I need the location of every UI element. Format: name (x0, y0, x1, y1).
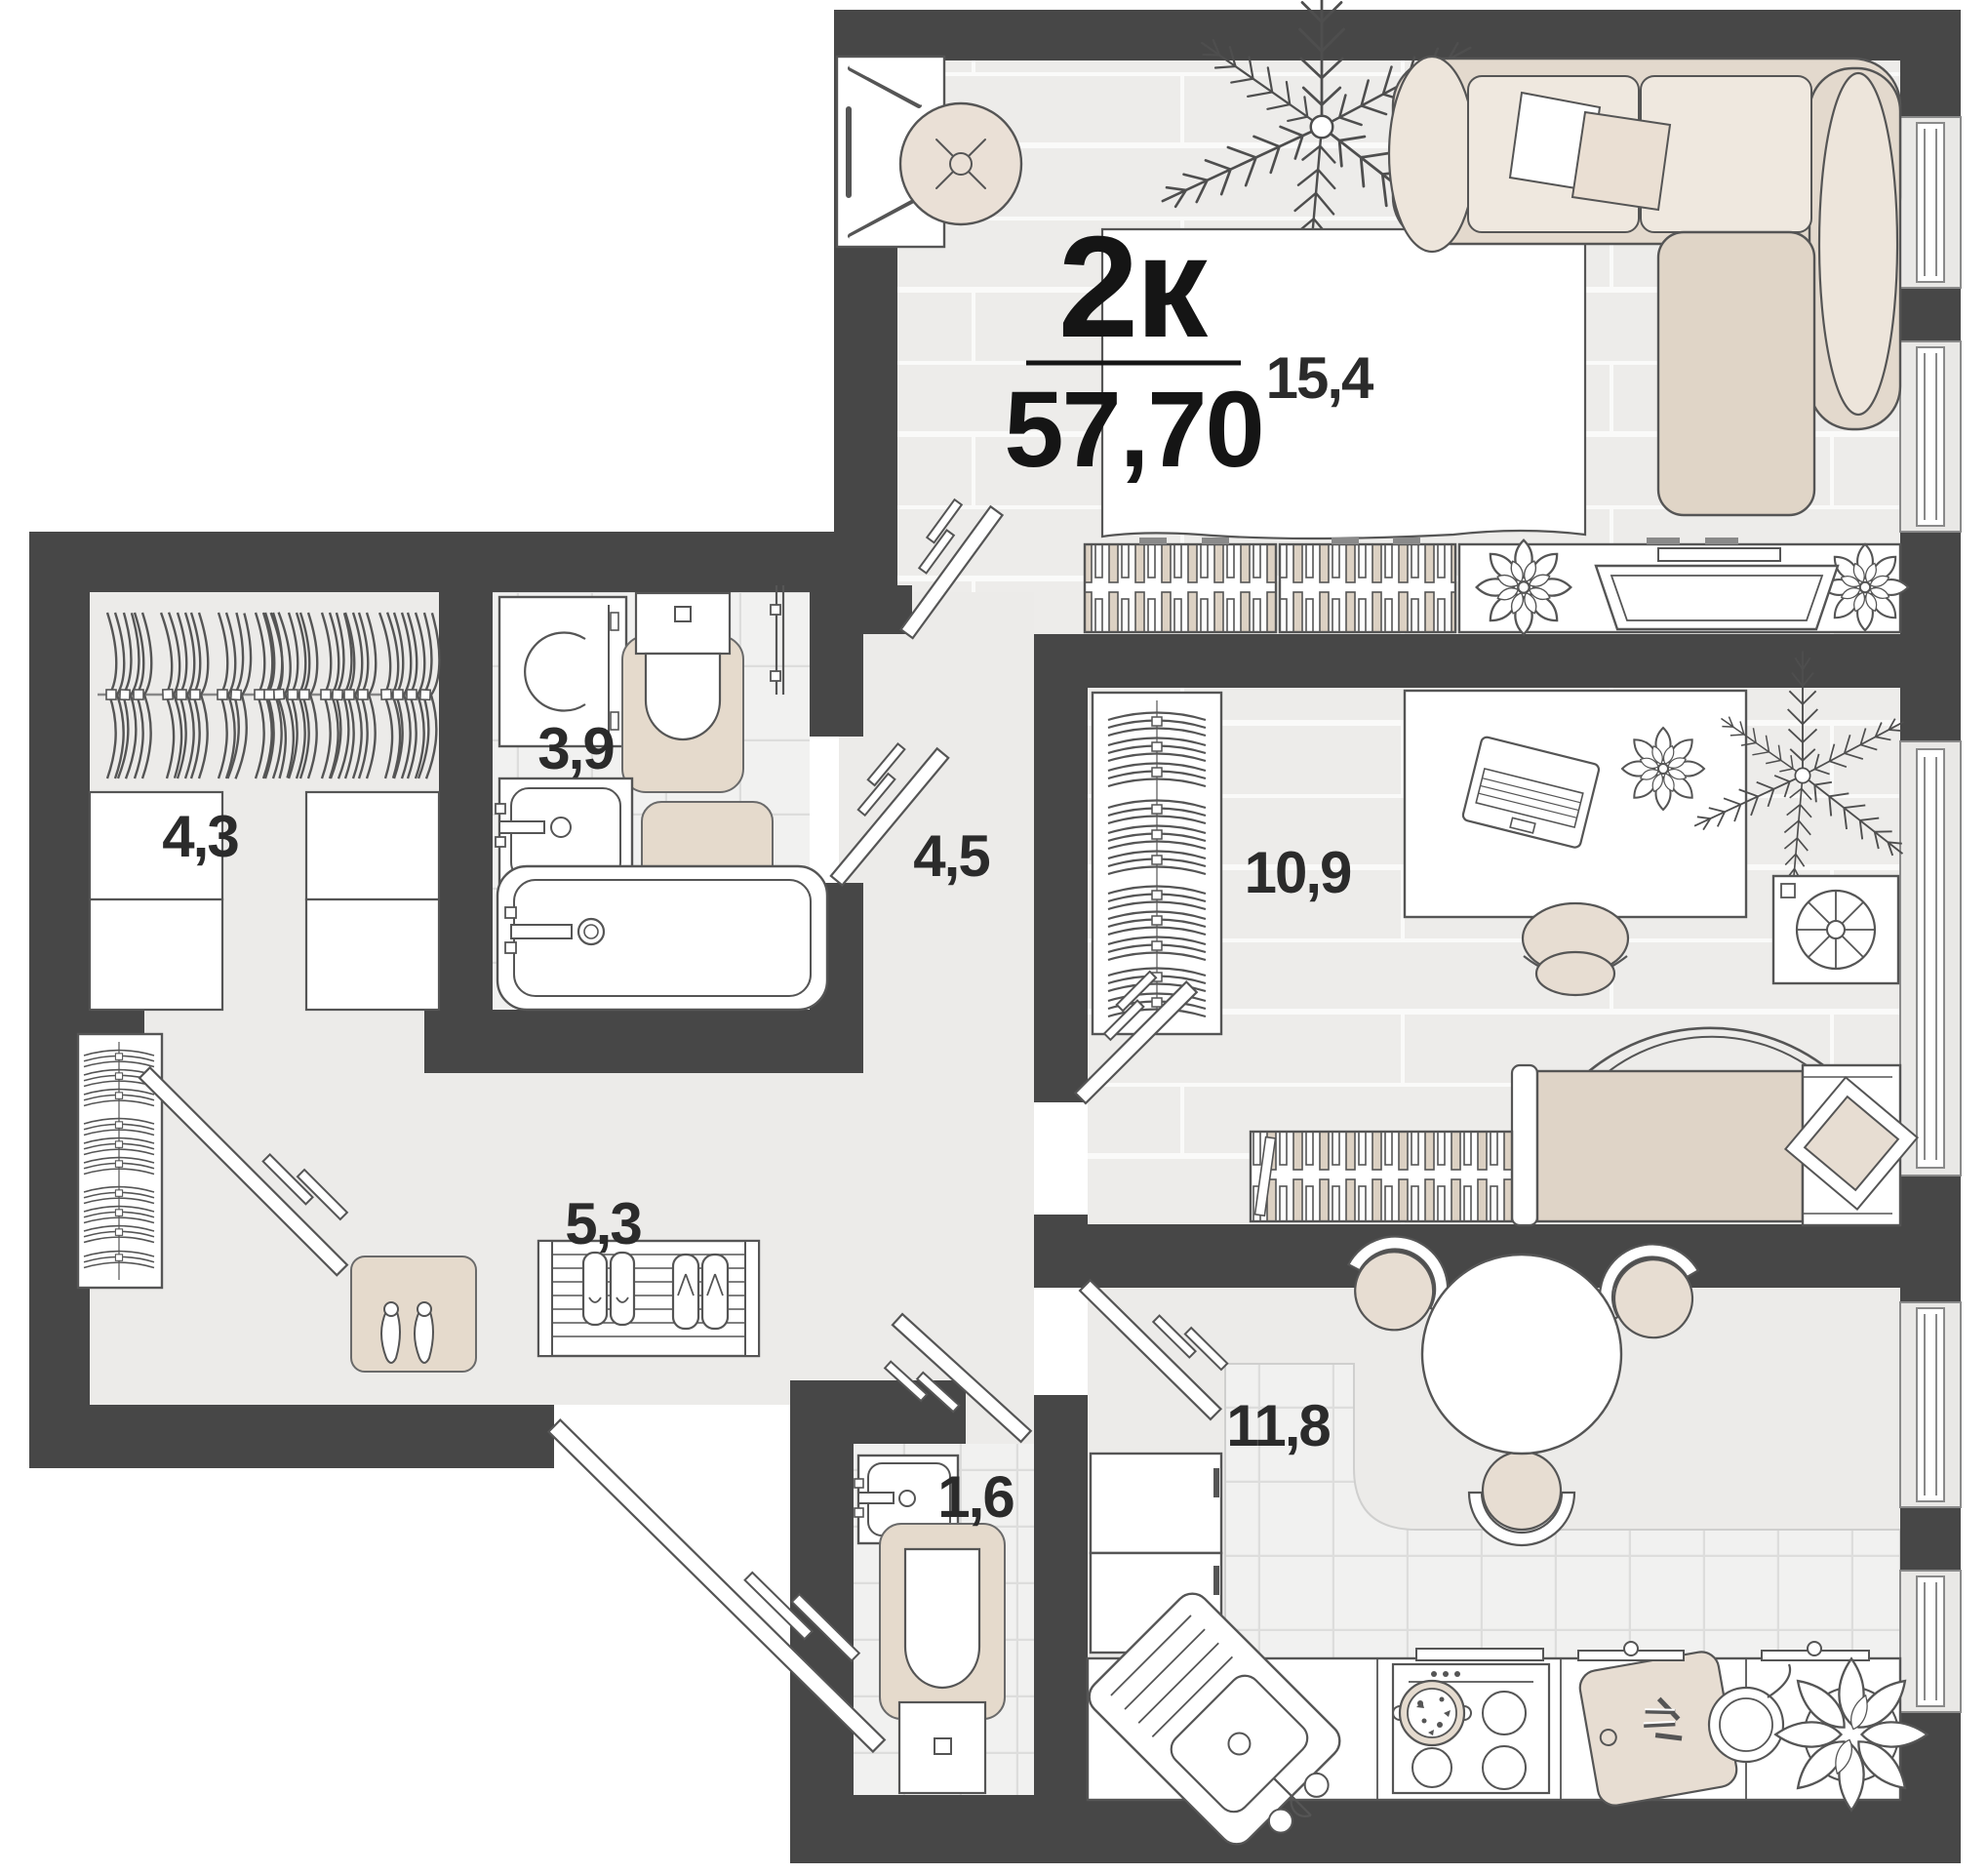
wall-right-5 (1900, 1507, 1961, 1571)
plant-icon (1775, 1658, 1927, 1810)
windows (1900, 117, 1961, 1712)
wall-left-top (29, 532, 897, 592)
wall-right-4 (1900, 1176, 1961, 1302)
ac-unit-icon (1773, 876, 1898, 983)
wall-hallway-bottom (29, 1405, 554, 1468)
area-label-wc: 1,6 (937, 1464, 1014, 1530)
area-label-wardrobe: 4,3 (162, 804, 238, 869)
wall-top (834, 10, 1961, 60)
bookshelf-icon (1251, 1132, 1512, 1221)
window-icon (1900, 117, 1961, 288)
wall-wardrobe-bath (439, 592, 493, 1073)
side-table-icon (900, 103, 1021, 224)
wall-living-bedroom (1034, 634, 1900, 688)
window-icon (1900, 341, 1961, 532)
shoe-mat-icon (351, 1256, 476, 1372)
wall-right-1 (1900, 10, 1961, 117)
plan-type-label: 2к (1058, 207, 1209, 368)
window-icon (1900, 1571, 1961, 1712)
wall-stub-kitchen-door (1034, 1215, 1088, 1288)
area-label-kitchen: 11,8 (1226, 1393, 1330, 1458)
floor-plan: 2к 57,70 15,4 10,9 11,8 5,3 4,5 4,3 3,9 … (0, 0, 1988, 1874)
tv-console (1085, 538, 1908, 634)
wall-right-3 (1900, 532, 1961, 741)
wc-toilet-icon (880, 1524, 1005, 1793)
wall-kitchen-left (1034, 1395, 1088, 1863)
area-label-hallway: 5,3 (565, 1191, 641, 1256)
office-chair-icon (1523, 903, 1628, 995)
wall-left (29, 532, 90, 1468)
bathtub-icon (497, 866, 827, 1010)
plant-icon (1477, 540, 1571, 635)
wall-bottom (790, 1795, 1961, 1863)
wall-right-2 (1900, 288, 1961, 341)
bookshelf-icon (1280, 544, 1455, 632)
bookshelf-icon (1085, 544, 1276, 632)
wall-bath-right-top (810, 592, 863, 737)
window-icon (1900, 741, 1961, 1176)
area-label-bedroom: 10,9 (1245, 840, 1351, 905)
shoe-rack-icon (538, 1241, 759, 1356)
stove-icon (1393, 1649, 1549, 1793)
wall-corridor-bedroom (1034, 634, 1088, 1102)
window-icon (1900, 1302, 1961, 1507)
plan-total-area: 57,70 (1004, 370, 1262, 490)
desk-icon (1405, 691, 1746, 917)
wall-bath-bottom (439, 1010, 863, 1073)
toilet-icon (622, 593, 743, 792)
floor-plan-svg: 2к 57,70 15,4 10,9 11,8 5,3 4,5 4,3 3,9 … (0, 0, 1988, 1874)
wall-wardrobe-bottom-r (424, 1010, 493, 1073)
chaise-icon (1658, 232, 1814, 515)
area-label-bathroom: 3,9 (537, 716, 614, 781)
area-label-living: 15,4 (1266, 345, 1374, 411)
plant-icon (1822, 544, 1908, 630)
wardrobe-icon (1093, 693, 1221, 1034)
flower-icon (1622, 728, 1704, 810)
area-label-corridor: 4,5 (913, 823, 989, 889)
